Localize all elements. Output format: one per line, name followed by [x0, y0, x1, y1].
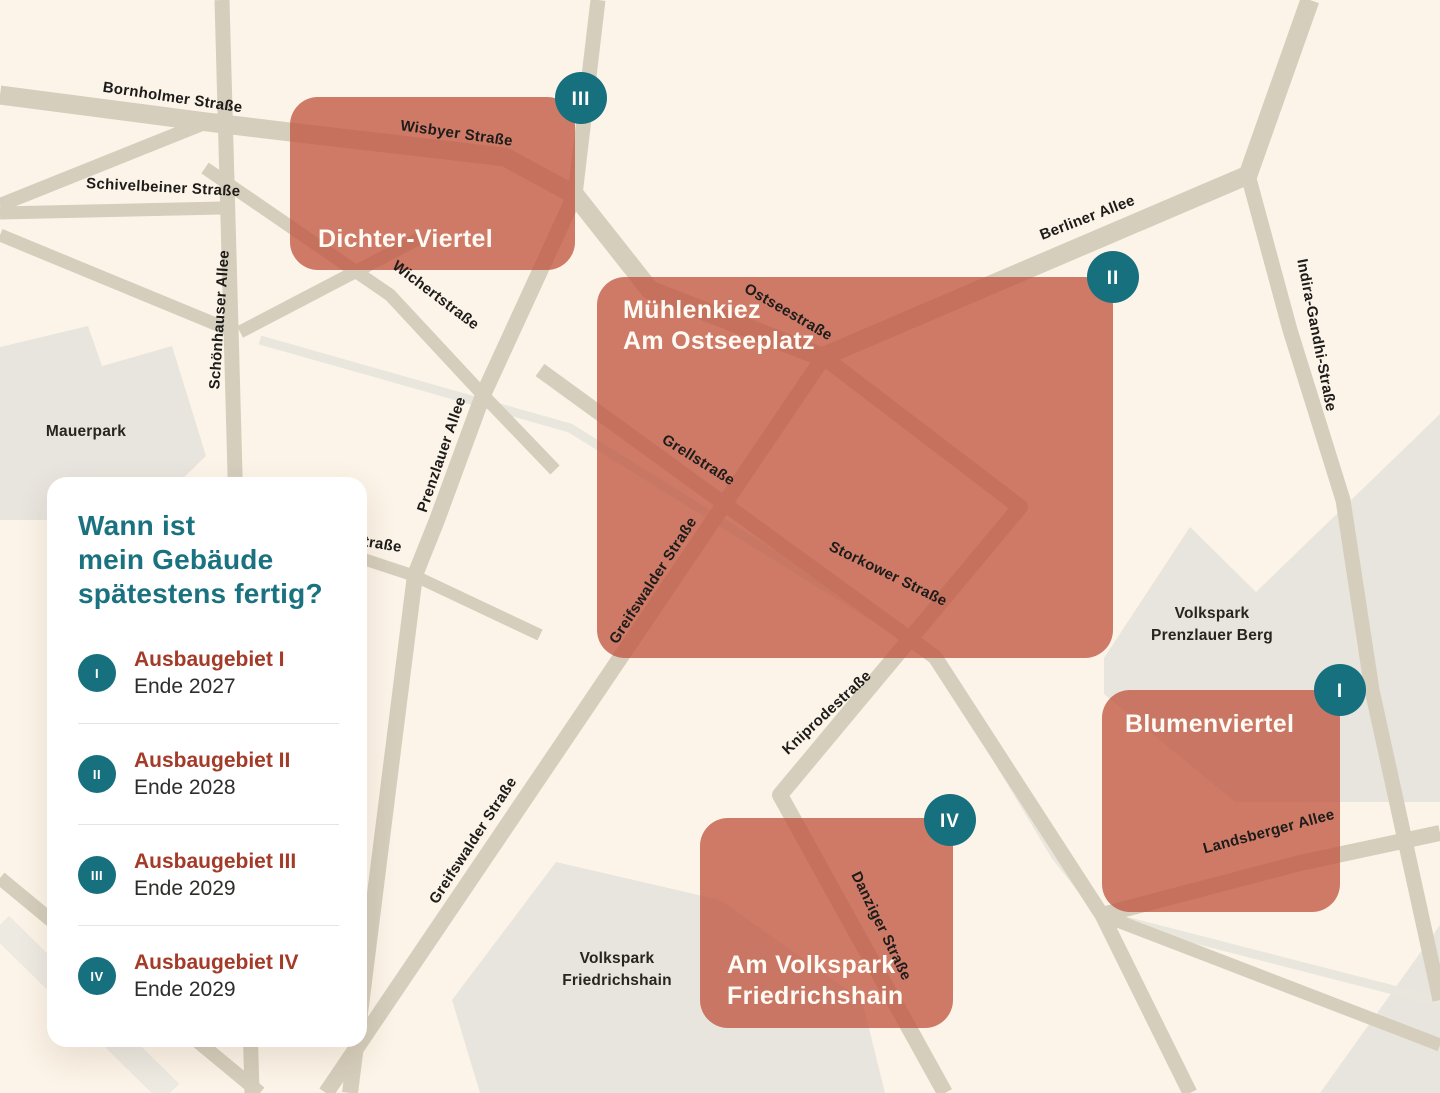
legend-item-text: Ausbaugebiet II Ende 2028: [134, 747, 290, 801]
area-label-am-volkspark-friedrichshain: Am Volkspark: [727, 951, 895, 979]
legend-title: Wann ist mein Gebäude spätestens fertig?: [78, 509, 339, 611]
map-badge-numeral: III: [572, 89, 591, 110]
legend-item-title: Ausbaugebiet III: [134, 848, 296, 875]
area-label-am-volkspark-friedrichshain: Friedrichshain: [727, 982, 903, 1010]
area-label-muehlenkiez-am-ostseeplatz: Am Ostseeplatz: [623, 327, 815, 355]
legend-title-line: Wann ist: [78, 509, 339, 543]
legend-item-text: Ausbaugebiet III Ende 2029: [134, 848, 296, 902]
map-canvas: Bornholmer StraßeSchivelbeiner StraßeSch…: [0, 0, 1440, 1093]
street-schivelbeiner-strasse: [0, 208, 222, 213]
legend-item-title: Ausbaugebiet I: [134, 646, 285, 673]
legend-item-ausbaugebiet-4: IV Ausbaugebiet IV Ende 2029: [78, 934, 339, 1018]
legend-item-date: Ende 2029: [134, 976, 299, 1003]
divider: [78, 925, 339, 926]
legend-item-ausbaugebiet-2: II Ausbaugebiet II Ende 2028: [78, 732, 339, 816]
area-label-muehlenkiez-am-ostseeplatz: Mühlenkiez: [623, 296, 761, 324]
roman-numeral-badge-iv: IV: [78, 957, 116, 995]
roman-numeral-badge-ii: II: [78, 755, 116, 793]
legend-item-ausbaugebiet-1: I Ausbaugebiet I Ende 2027: [78, 631, 339, 715]
legend-item-text: Ausbaugebiet I Ende 2027: [134, 646, 285, 700]
legend-title-line: mein Gebäude: [78, 543, 339, 577]
roman-numeral-badge-iii: III: [78, 856, 116, 894]
divider: [78, 824, 339, 825]
divider: [78, 723, 339, 724]
park-label-mauerpark: Mauerpark: [46, 423, 126, 440]
map-badge-numeral: IV: [940, 811, 960, 832]
legend-item-ausbaugebiet-3: III Ausbaugebiet III Ende 2029: [78, 833, 339, 917]
legend-title-line: spätestens fertig?: [78, 577, 339, 611]
area-label-blumenviertel: Blumenviertel: [1125, 710, 1294, 738]
legend-item-title: Ausbaugebiet IV: [134, 949, 299, 976]
legend-item-text: Ausbaugebiet IV Ende 2029: [134, 949, 299, 1003]
map-badge-numeral: II: [1107, 268, 1120, 289]
legend-card: Wann ist mein Gebäude spätestens fertig?…: [47, 477, 367, 1047]
legend-item-date: Ende 2028: [134, 774, 290, 801]
area-label-dichter-viertel: Dichter-Viertel: [318, 225, 493, 253]
legend-item-date: Ende 2027: [134, 673, 285, 700]
roman-numeral-badge-i: I: [78, 654, 116, 692]
legend-item-date: Ende 2029: [134, 875, 296, 902]
legend-item-title: Ausbaugebiet II: [134, 747, 290, 774]
map-badge-numeral: I: [1337, 681, 1343, 702]
